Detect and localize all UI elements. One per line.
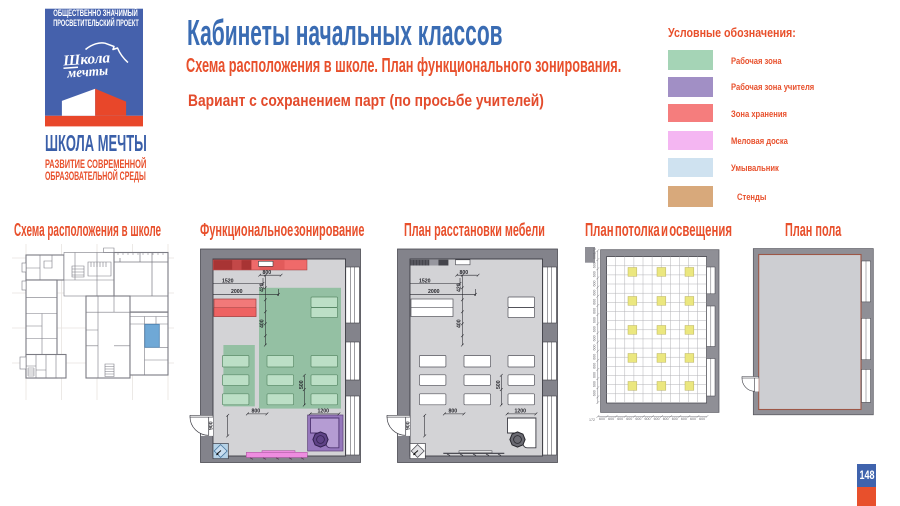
svg-text:600: 600 xyxy=(592,335,596,341)
svg-text:1520: 1520 xyxy=(419,278,431,284)
svg-text:420: 420 xyxy=(259,283,265,292)
svg-text:1200: 1200 xyxy=(515,409,527,415)
svg-text:600: 600 xyxy=(592,271,596,277)
svg-text:600: 600 xyxy=(592,290,596,296)
svg-text:172: 172 xyxy=(589,418,595,422)
svg-text:600: 600 xyxy=(592,354,596,360)
svg-text:420: 420 xyxy=(456,283,462,292)
svg-text:600: 600 xyxy=(592,299,596,305)
svg-text:600: 600 xyxy=(592,372,596,378)
svg-text:600: 600 xyxy=(672,417,678,421)
svg-text:600: 600 xyxy=(617,417,623,421)
svg-text:600: 600 xyxy=(626,417,632,421)
svg-text:800: 800 xyxy=(252,409,261,415)
svg-text:600: 600 xyxy=(592,363,596,369)
svg-text:800: 800 xyxy=(460,270,469,276)
svg-text:600: 600 xyxy=(592,308,596,314)
svg-text:500: 500 xyxy=(496,380,502,389)
svg-text:600: 600 xyxy=(592,390,596,396)
svg-text:600: 600 xyxy=(592,326,596,332)
svg-text:1520: 1520 xyxy=(222,278,234,284)
svg-text:2000: 2000 xyxy=(428,289,440,295)
svg-text:600: 600 xyxy=(592,345,596,351)
svg-text:600: 600 xyxy=(599,417,605,421)
svg-text:800: 800 xyxy=(449,409,458,415)
svg-text:172: 172 xyxy=(592,248,596,254)
svg-text:600: 600 xyxy=(592,281,596,287)
svg-text:600: 600 xyxy=(635,417,641,421)
svg-text:600: 600 xyxy=(681,417,687,421)
svg-text:600: 600 xyxy=(654,417,660,421)
svg-text:400: 400 xyxy=(456,319,462,328)
svg-text:600: 600 xyxy=(592,262,596,268)
svg-text:600: 600 xyxy=(645,417,651,421)
svg-text:400: 400 xyxy=(259,319,265,328)
svg-text:900: 900 xyxy=(208,421,214,430)
svg-text:600: 600 xyxy=(592,317,596,323)
svg-text:900: 900 xyxy=(405,421,411,430)
svg-text:600: 600 xyxy=(592,381,596,387)
svg-text:600: 600 xyxy=(663,417,669,421)
svg-text:600: 600 xyxy=(699,417,705,421)
svg-text:1200: 1200 xyxy=(318,409,330,415)
svg-text:600: 600 xyxy=(608,417,614,421)
svg-text:600: 600 xyxy=(690,417,696,421)
svg-text:500: 500 xyxy=(299,380,305,389)
svg-text:2000: 2000 xyxy=(231,289,243,295)
svg-text:800: 800 xyxy=(263,270,272,276)
